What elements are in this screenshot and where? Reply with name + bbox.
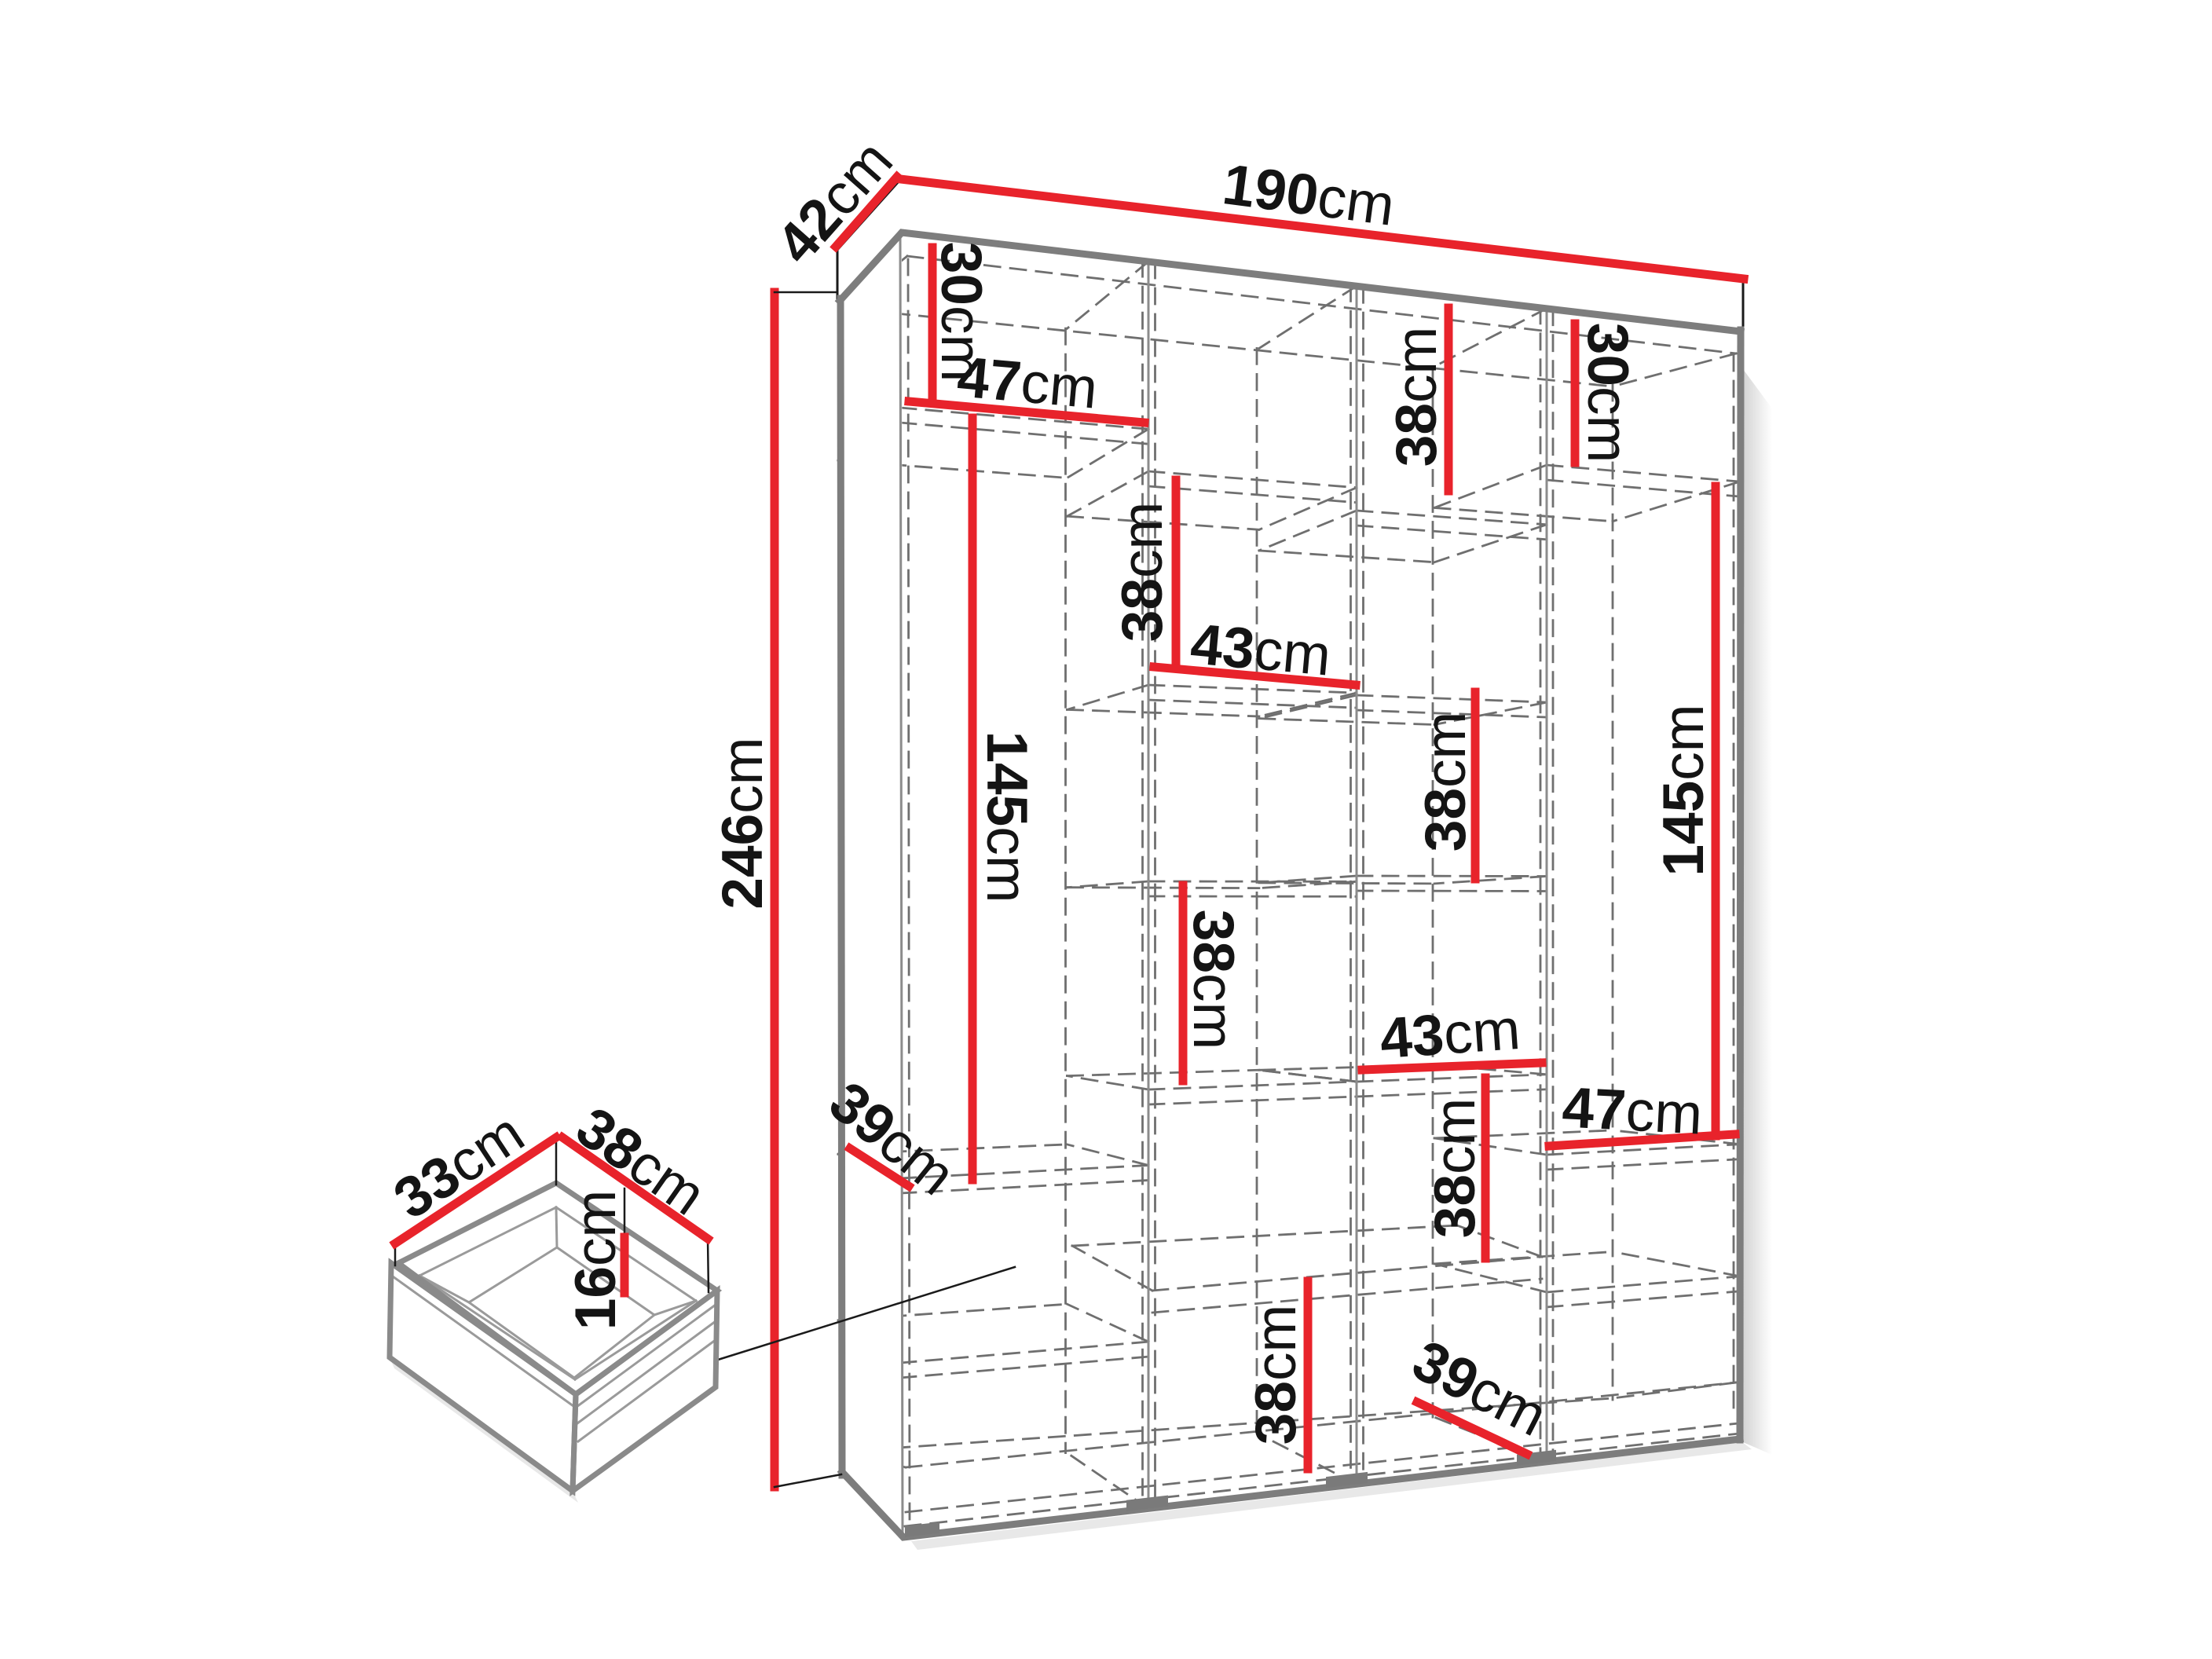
svg-text:30cm: 30cm	[1577, 323, 1640, 463]
svg-text:246cm: 246cm	[711, 737, 775, 909]
svg-text:145cm: 145cm	[976, 731, 1039, 903]
svg-text:43cm: 43cm	[1188, 612, 1333, 688]
svg-text:16cm: 16cm	[564, 1190, 628, 1331]
svg-text:38cm: 38cm	[1182, 910, 1246, 1050]
svg-text:38cm: 38cm	[1244, 1305, 1308, 1445]
svg-text:38cm: 38cm	[1423, 1098, 1487, 1239]
svg-text:47cm: 47cm	[954, 345, 1100, 421]
svg-text:43cm: 43cm	[1378, 997, 1522, 1070]
svg-text:38cm: 38cm	[1111, 502, 1174, 643]
svg-text:38cm: 38cm	[1414, 712, 1478, 852]
svg-text:145cm: 145cm	[1652, 704, 1716, 876]
svg-text:47cm: 47cm	[1561, 1075, 1705, 1146]
svg-text:38cm: 38cm	[1385, 327, 1448, 467]
